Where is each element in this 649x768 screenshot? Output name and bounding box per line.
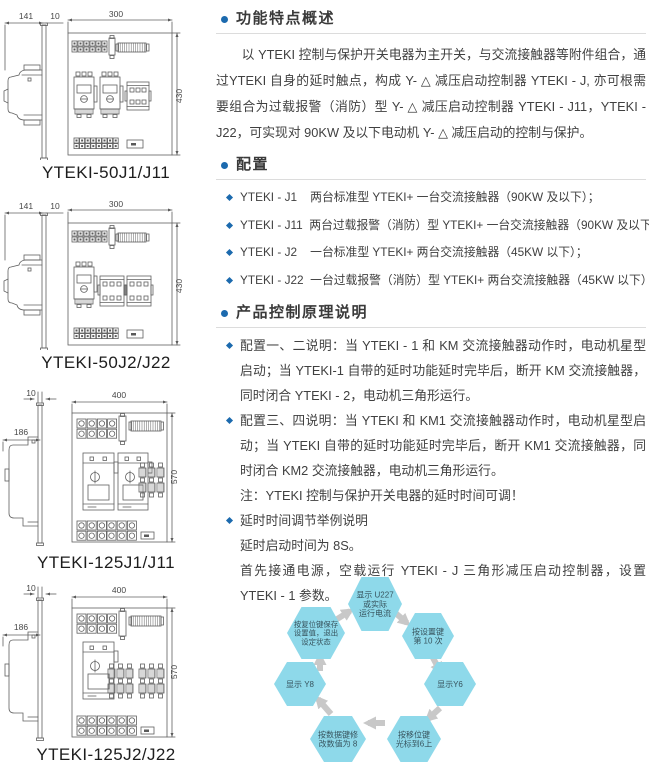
bullet-dot-icon bbox=[221, 310, 228, 317]
section-heading-config: 配置 bbox=[216, 146, 646, 174]
svg-text:按移位键: 按移位键 bbox=[398, 729, 430, 739]
diamond-bullet-icon bbox=[226, 194, 233, 201]
svg-text:设定状态: 设定状态 bbox=[301, 637, 331, 646]
diagram-caption: YTEKI-50J1/J11 bbox=[0, 163, 212, 183]
drawing-yteki-50j2-j22: 14110300430 YTEKI-50J2/J22 bbox=[0, 198, 212, 373]
features-paragraph: 以 YTEKI 控制与保护开关电器为主开关，与交流接触器等附件组合，通过YTEK… bbox=[216, 42, 646, 146]
config-item-j1: YTEKI - J1 两台标准型 YTEKI+ 一台交流接触器（90KW 及以下… bbox=[216, 184, 646, 212]
svg-text:10: 10 bbox=[26, 388, 36, 398]
content-column: 功能特点概述 以 YTEKI 控制与保护开关电器为主开关，与交流接触器等附件组合… bbox=[216, 0, 649, 608]
drawing-125j2: 10186400570 bbox=[3, 583, 179, 741]
svg-text:430: 430 bbox=[174, 279, 184, 293]
diamond-bullet-icon bbox=[226, 417, 233, 424]
svg-text:运行电流: 运行电流 bbox=[359, 608, 391, 618]
bullet-dot-icon bbox=[221, 16, 228, 23]
section-title-features: 功能特点概述 bbox=[236, 9, 335, 28]
principle-text: 配置三、四说明：当 YTEKI 和 KM1 交流接触器动作时，电动机星型启动；当… bbox=[240, 408, 646, 483]
svg-text:显示 U227: 显示 U227 bbox=[356, 591, 394, 600]
diamond-bullet-icon bbox=[226, 277, 233, 284]
svg-text:第 10 次: 第 10 次 bbox=[413, 635, 442, 645]
svg-text:141: 141 bbox=[19, 11, 33, 21]
divider bbox=[216, 33, 646, 34]
svg-text:按设置键: 按设置键 bbox=[412, 626, 444, 636]
config-item-j22: YTEKI - J22 一台过载报警（消防）型 YTEKI+ 两台交流接触器（4… bbox=[216, 267, 646, 295]
principle-list: 配置一、二说明：当 YTEKI - 1 和 KM 交流接触器动作时，电动机星型启… bbox=[216, 333, 646, 608]
svg-text:570: 570 bbox=[169, 665, 179, 679]
flow-node-display-y6: 显示Y6 bbox=[424, 662, 476, 706]
config-item-j11: YTEKI - J11 两台过载报警（消防）型 YTEKI+ 一台交流接触器（9… bbox=[216, 212, 646, 240]
bullet-dot-icon bbox=[221, 162, 228, 169]
flow-node-display-current: 显示 U227或实际运行电流 bbox=[348, 577, 402, 631]
svg-text:430: 430 bbox=[174, 89, 184, 103]
divider bbox=[216, 327, 646, 328]
principle-item-1: 配置一、二说明：当 YTEKI - 1 和 KM 交流接触器动作时，电动机星型启… bbox=[216, 333, 646, 408]
flow-node-press-set-key: 按设置键第 10 次 bbox=[402, 613, 454, 659]
principle-sub-line: 延时启动时间为 8S。 bbox=[240, 533, 646, 558]
flow-arrow-2 bbox=[428, 708, 440, 719]
flow-node-press-data-key: 按数据键修改数值为 8 bbox=[310, 716, 366, 762]
technical-drawing-50j1: 14110300430 bbox=[0, 8, 212, 160]
diamond-bullet-icon bbox=[226, 249, 233, 256]
hexagon-cycle-chart: 显示 U227或实际运行电流按设置键第 10 次显示Y6按移位键光标到6上按数据… bbox=[258, 570, 492, 768]
drawing-50j1: 14110300430 bbox=[4, 9, 184, 160]
flow-node-press-shift-key: 按移位键光标到6上 bbox=[387, 716, 441, 762]
diagram-caption: YTEKI-125J1/J11 bbox=[0, 553, 212, 573]
svg-text:10: 10 bbox=[50, 201, 60, 211]
svg-text:按数据键修: 按数据键修 bbox=[318, 729, 358, 739]
principle-item-2: 配置三、四说明：当 YTEKI 和 KM1 交流接触器动作时，电动机星型启动；当… bbox=[216, 408, 646, 508]
svg-text:10: 10 bbox=[26, 583, 36, 593]
svg-text:10: 10 bbox=[50, 11, 60, 21]
divider bbox=[216, 179, 646, 180]
principle-note: 注：YTEKI 控制与保护开关电器的延时时间可调！ bbox=[240, 483, 646, 508]
technical-drawing-125j1: 10186400570 bbox=[0, 385, 212, 550]
svg-text:400: 400 bbox=[112, 585, 126, 595]
svg-text:300: 300 bbox=[109, 9, 123, 19]
principle-text: 延时时间调节举例说明 bbox=[240, 508, 646, 533]
diamond-bullet-icon bbox=[226, 517, 233, 524]
drawing-50j2: 14110300430 bbox=[4, 199, 184, 350]
diagram-caption: YTEKI-50J2/J22 bbox=[0, 353, 212, 373]
svg-text:300: 300 bbox=[109, 199, 123, 209]
principle-text: 配置一、二说明：当 YTEKI - 1 和 KM 交流接触器动作时，电动机星型启… bbox=[240, 333, 646, 408]
svg-text:光标到6上: 光标到6上 bbox=[396, 738, 432, 748]
drawing-yteki-125j2-j22: 10186400570 YTEKI-125J2/J22 bbox=[0, 580, 212, 765]
diamond-bullet-icon bbox=[226, 222, 233, 229]
svg-text:或实际: 或实际 bbox=[363, 599, 387, 609]
drawing-yteki-50j1-j11: 14110300430 YTEKI-50J1/J11 bbox=[0, 8, 212, 183]
section-title-principle: 产品控制原理说明 bbox=[236, 303, 368, 322]
svg-text:141: 141 bbox=[19, 201, 33, 211]
catalog-page: 14110300430 YTEKI-50J1/J11 14110300430 Y… bbox=[0, 0, 649, 768]
diamond-bullet-icon bbox=[226, 342, 233, 349]
config-list: YTEKI - J1 两台标准型 YTEKI+ 一台交流接触器（90KW 及以下… bbox=[216, 184, 646, 294]
svg-text:400: 400 bbox=[112, 390, 126, 400]
config-item-j2: YTEKI - J2 一台标准型 YTEKI+ 两台交流接触器（45KW 以下）… bbox=[216, 239, 646, 267]
svg-text:改数值为 8: 改数值为 8 bbox=[319, 738, 358, 748]
svg-text:186: 186 bbox=[14, 622, 28, 632]
svg-text:显示 Y8: 显示 Y8 bbox=[286, 680, 315, 689]
svg-text:186: 186 bbox=[14, 427, 28, 437]
drawing-yteki-125j1-j11: 10186400570 YTEKI-125J1/J11 bbox=[0, 385, 212, 573]
diagram-caption: YTEKI-125J2/J22 bbox=[0, 745, 212, 765]
flow-node-press-reset-key: 按复位键保存设置值，退出设定状态 bbox=[287, 607, 345, 659]
section-title-config: 配置 bbox=[236, 155, 269, 174]
technical-drawing-125j2: 10186400570 bbox=[0, 580, 212, 742]
technical-drawing-50j2: 14110300430 bbox=[0, 198, 212, 350]
section-heading-features: 功能特点概述 bbox=[216, 0, 646, 28]
svg-text:显示Y6: 显示Y6 bbox=[437, 680, 463, 689]
setting-flow-diagram: 显示 U227或实际运行电流按设置键第 10 次显示Y6按移位键光标到6上按数据… bbox=[258, 570, 492, 768]
flow-arrow-4 bbox=[318, 699, 331, 714]
drawing-125j1: 10186400570 bbox=[3, 388, 179, 546]
svg-text:570: 570 bbox=[169, 470, 179, 484]
section-heading-principle: 产品控制原理说明 bbox=[216, 294, 646, 322]
